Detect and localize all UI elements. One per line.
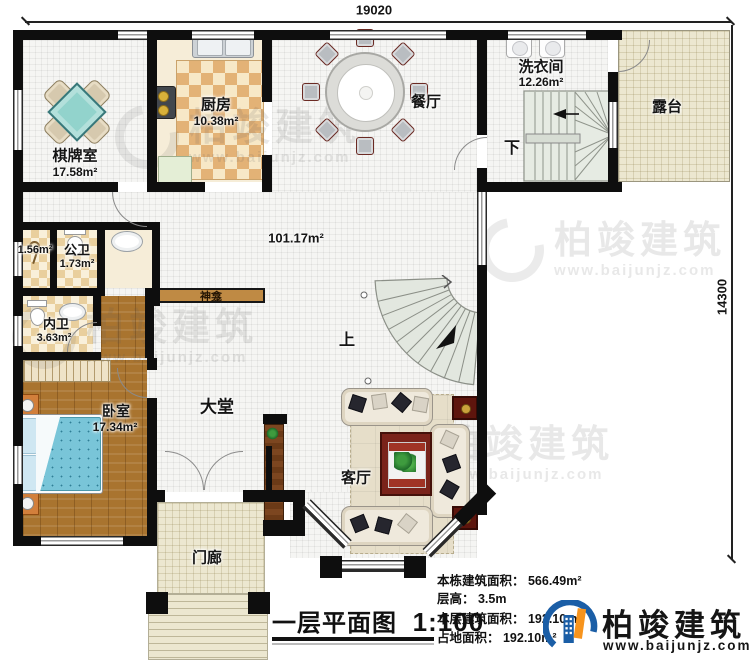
- brand-logo-icon: [543, 600, 599, 658]
- label-ensuite-bath-area: 3.63m²: [37, 332, 72, 344]
- dimension-line-right: [731, 25, 733, 560]
- bay-corner-post: [404, 556, 426, 578]
- wall: [13, 276, 23, 316]
- label-lobby: 大堂: [200, 393, 234, 418]
- label-chess-room: 棋牌室: [52, 145, 97, 166]
- tv: [266, 446, 272, 490]
- bay-window: [342, 560, 404, 572]
- wall: [608, 72, 618, 102]
- stair-up: [358, 275, 483, 387]
- stat-line: 占地面积： 192.10m²: [437, 627, 556, 646]
- label-stair-up: 上: [339, 326, 355, 350]
- label-ensuite-bath: 内卫: [43, 314, 69, 333]
- label-public-bath-area: 1.73m²: [60, 258, 95, 270]
- wall: [263, 414, 287, 424]
- stat-line: 层高： 3.5m: [437, 588, 506, 607]
- wall: [13, 30, 23, 90]
- window: [477, 192, 487, 265]
- wall: [13, 30, 118, 40]
- wall: [477, 265, 487, 515]
- window: [608, 102, 618, 148]
- wall: [13, 288, 105, 296]
- wall: [608, 148, 618, 192]
- title-underline: [272, 637, 434, 641]
- label-dining: 餐厅: [411, 91, 441, 112]
- label-laundry: 洗衣间: [518, 56, 563, 77]
- bed-sheet: [36, 417, 62, 491]
- stat-line: 本栋建筑面积： 566.49m²: [437, 570, 581, 589]
- table-plant: [394, 452, 416, 472]
- label-laundry-area: 12.26m²: [519, 75, 564, 89]
- stove-burner: [158, 91, 169, 102]
- stove-burner: [158, 105, 169, 116]
- wall: [263, 520, 305, 536]
- vanity-sink: [111, 231, 143, 252]
- dimension-line-top: [25, 21, 731, 23]
- toilet-tank: [27, 300, 47, 307]
- side-table-plant: [452, 396, 478, 420]
- label-hall-area: 101.17m²: [268, 231, 324, 246]
- dining-chair: [356, 137, 374, 155]
- wall: [97, 222, 105, 296]
- wall: [262, 155, 272, 192]
- floor-plan: 柏竣建筑 www.baijunjz.com 柏竣建筑 www.baijunjz.…: [0, 0, 750, 669]
- wall: [157, 182, 205, 192]
- label-shower-area: 1.56m²: [18, 244, 53, 256]
- wall: [13, 352, 97, 360]
- dining-table-center: [359, 86, 373, 100]
- plan-title-text: 一层平面图: [272, 610, 397, 637]
- bay-corner-post: [320, 556, 342, 578]
- window: [41, 536, 123, 546]
- sofa-pillow: [371, 393, 388, 410]
- watermark: 柏竣建筑 www.baijunjz.com: [480, 218, 726, 282]
- wall: [477, 30, 487, 135]
- wall: [147, 490, 165, 502]
- label-public-bath: 公卫: [64, 240, 90, 259]
- watermark-name: 柏竣建筑: [554, 222, 726, 260]
- watermark-site: www.baijunjz.com: [554, 262, 726, 279]
- title-underline-thin: [272, 643, 434, 645]
- wall: [13, 182, 118, 192]
- porch-column: [248, 592, 270, 614]
- wall: [145, 288, 154, 358]
- label-stair-down: 下: [504, 134, 520, 158]
- wall: [608, 30, 618, 40]
- wall: [13, 536, 41, 546]
- window: [330, 30, 446, 40]
- window: [13, 316, 23, 346]
- sofa-pillow: [412, 396, 429, 413]
- wall: [13, 346, 23, 446]
- dimension-right: 14300: [715, 279, 730, 315]
- wall: [147, 398, 157, 546]
- label-porch: 门廊: [192, 547, 222, 568]
- dimension-top: 19020: [356, 3, 392, 18]
- wall: [50, 230, 57, 288]
- label-bedroom: 卧室: [102, 401, 130, 421]
- label-chess-room-area: 17.58m²: [53, 165, 98, 179]
- watermark-name: 柏竣建筑: [86, 309, 258, 347]
- window: [192, 30, 254, 40]
- window: [13, 90, 23, 150]
- label-shrine: 神龛: [200, 288, 222, 304]
- window: [13, 446, 23, 484]
- watermark-site: www.baijunjz.com: [189, 149, 361, 166]
- wall: [147, 358, 157, 370]
- kitchen-counter: [158, 156, 192, 184]
- cabinet-plant: [266, 427, 279, 440]
- kitchen-sink-basin: [197, 39, 223, 56]
- label-kitchen: 厨房: [201, 94, 231, 115]
- stair-down: [523, 90, 613, 182]
- porch-column: [146, 592, 168, 614]
- dining-chair: [302, 83, 320, 101]
- label-terrace: 露台: [652, 96, 682, 117]
- label-living-room: 客厅: [341, 467, 371, 488]
- watermark-site: www.baijunjz.com: [86, 349, 258, 366]
- wall: [147, 30, 157, 192]
- window: [508, 30, 586, 40]
- wall: [477, 182, 622, 192]
- label-bedroom-area: 17.34m²: [93, 420, 138, 434]
- shower-cell-floor: [23, 230, 50, 288]
- window: [118, 30, 148, 40]
- kitchen-sink-basin: [225, 39, 251, 56]
- label-kitchen-area: 10.38m²: [194, 114, 239, 128]
- brand-site: www.baijunjz.com: [603, 638, 750, 653]
- wall: [262, 30, 272, 102]
